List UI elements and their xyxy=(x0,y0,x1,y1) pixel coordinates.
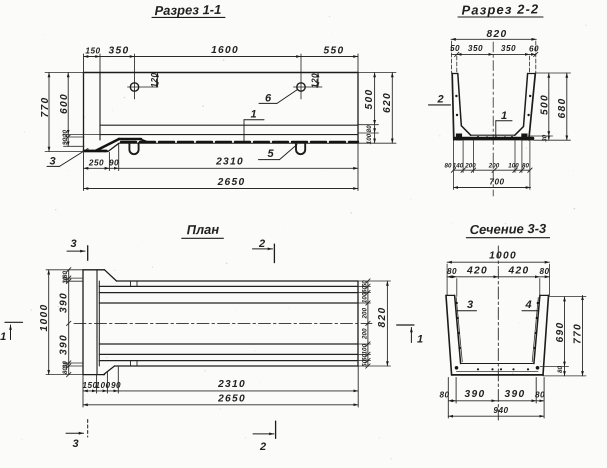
svg-text:80: 80 xyxy=(62,367,69,375)
svg-text:80: 80 xyxy=(539,267,549,276)
svg-text:100: 100 xyxy=(362,343,369,354)
svg-text:820: 820 xyxy=(487,29,508,40)
svg-text:80: 80 xyxy=(522,162,530,169)
svg-text:700: 700 xyxy=(489,177,504,186)
svg-text:Разрез 2-2: Разрез 2-2 xyxy=(461,1,539,17)
svg-text:770: 770 xyxy=(573,323,584,344)
svg-text:90: 90 xyxy=(62,138,69,146)
svg-text:2310: 2310 xyxy=(217,379,246,390)
svg-text:80: 80 xyxy=(439,391,449,400)
svg-text:390: 390 xyxy=(505,389,526,400)
svg-text:680: 680 xyxy=(557,98,568,119)
svg-text:140: 140 xyxy=(453,162,464,169)
svg-text:30: 30 xyxy=(62,276,69,284)
svg-text:90: 90 xyxy=(111,381,121,390)
svg-text:390: 390 xyxy=(59,334,70,355)
svg-text:120: 120 xyxy=(311,73,320,88)
svg-text:420: 420 xyxy=(466,266,488,277)
svg-text:80: 80 xyxy=(535,391,545,400)
svg-text:600: 600 xyxy=(59,93,70,114)
svg-text:30: 30 xyxy=(62,361,69,369)
svg-text:620: 620 xyxy=(382,92,393,113)
svg-text:500: 500 xyxy=(540,94,551,115)
svg-text:550: 550 xyxy=(324,46,345,57)
svg-text:350: 350 xyxy=(468,44,483,53)
svg-text:30: 30 xyxy=(542,134,549,142)
svg-text:2650: 2650 xyxy=(217,177,246,188)
svg-text:2: 2 xyxy=(436,93,443,105)
svg-text:820: 820 xyxy=(377,307,388,328)
svg-text:80: 80 xyxy=(444,162,452,169)
svg-text:80: 80 xyxy=(447,267,457,276)
svg-text:3: 3 xyxy=(467,299,473,311)
svg-text:770: 770 xyxy=(40,97,51,118)
svg-text:1000: 1000 xyxy=(489,251,517,262)
svg-text:350: 350 xyxy=(501,44,516,53)
svg-text:100: 100 xyxy=(366,133,373,144)
svg-text:100: 100 xyxy=(95,381,110,390)
svg-text:80: 80 xyxy=(366,125,373,133)
svg-text:2310: 2310 xyxy=(215,156,244,167)
svg-text:200: 200 xyxy=(464,162,476,169)
svg-text:390: 390 xyxy=(59,292,70,313)
svg-text:90: 90 xyxy=(109,158,119,167)
svg-text:250: 250 xyxy=(88,158,104,167)
svg-text:Разрез 1-1: Разрез 1-1 xyxy=(154,2,221,18)
svg-text:1: 1 xyxy=(417,334,423,346)
svg-text:100: 100 xyxy=(508,162,519,169)
svg-text:2: 2 xyxy=(259,441,266,453)
svg-text:1000: 1000 xyxy=(39,304,50,332)
svg-text:6: 6 xyxy=(265,93,272,105)
svg-text:Сечение 3-3: Сечение 3-3 xyxy=(470,221,548,237)
svg-text:1600: 1600 xyxy=(211,45,239,56)
svg-text:1: 1 xyxy=(0,331,6,343)
svg-text:150: 150 xyxy=(85,47,100,56)
svg-text:2650: 2650 xyxy=(217,393,246,404)
svg-text:60: 60 xyxy=(529,45,539,54)
svg-text:5: 5 xyxy=(267,148,274,160)
svg-text:200: 200 xyxy=(488,162,500,169)
svg-text:390: 390 xyxy=(465,389,486,400)
svg-text:500: 500 xyxy=(364,89,375,110)
svg-text:940: 940 xyxy=(493,406,508,415)
svg-text:3: 3 xyxy=(72,438,78,450)
svg-text:4: 4 xyxy=(524,299,531,311)
svg-text:100: 100 xyxy=(362,292,369,303)
svg-text:План: План xyxy=(187,222,220,238)
svg-text:350: 350 xyxy=(109,46,130,57)
svg-text:2: 2 xyxy=(258,238,265,250)
svg-text:3: 3 xyxy=(49,156,55,168)
svg-text:200: 200 xyxy=(362,307,369,319)
svg-text:200: 200 xyxy=(362,328,369,340)
svg-text:690: 690 xyxy=(555,322,566,343)
svg-text:1: 1 xyxy=(501,110,507,122)
svg-text:1: 1 xyxy=(250,109,256,121)
svg-text:120: 120 xyxy=(150,72,159,87)
svg-text:420: 420 xyxy=(508,266,530,277)
svg-text:3: 3 xyxy=(70,238,76,250)
